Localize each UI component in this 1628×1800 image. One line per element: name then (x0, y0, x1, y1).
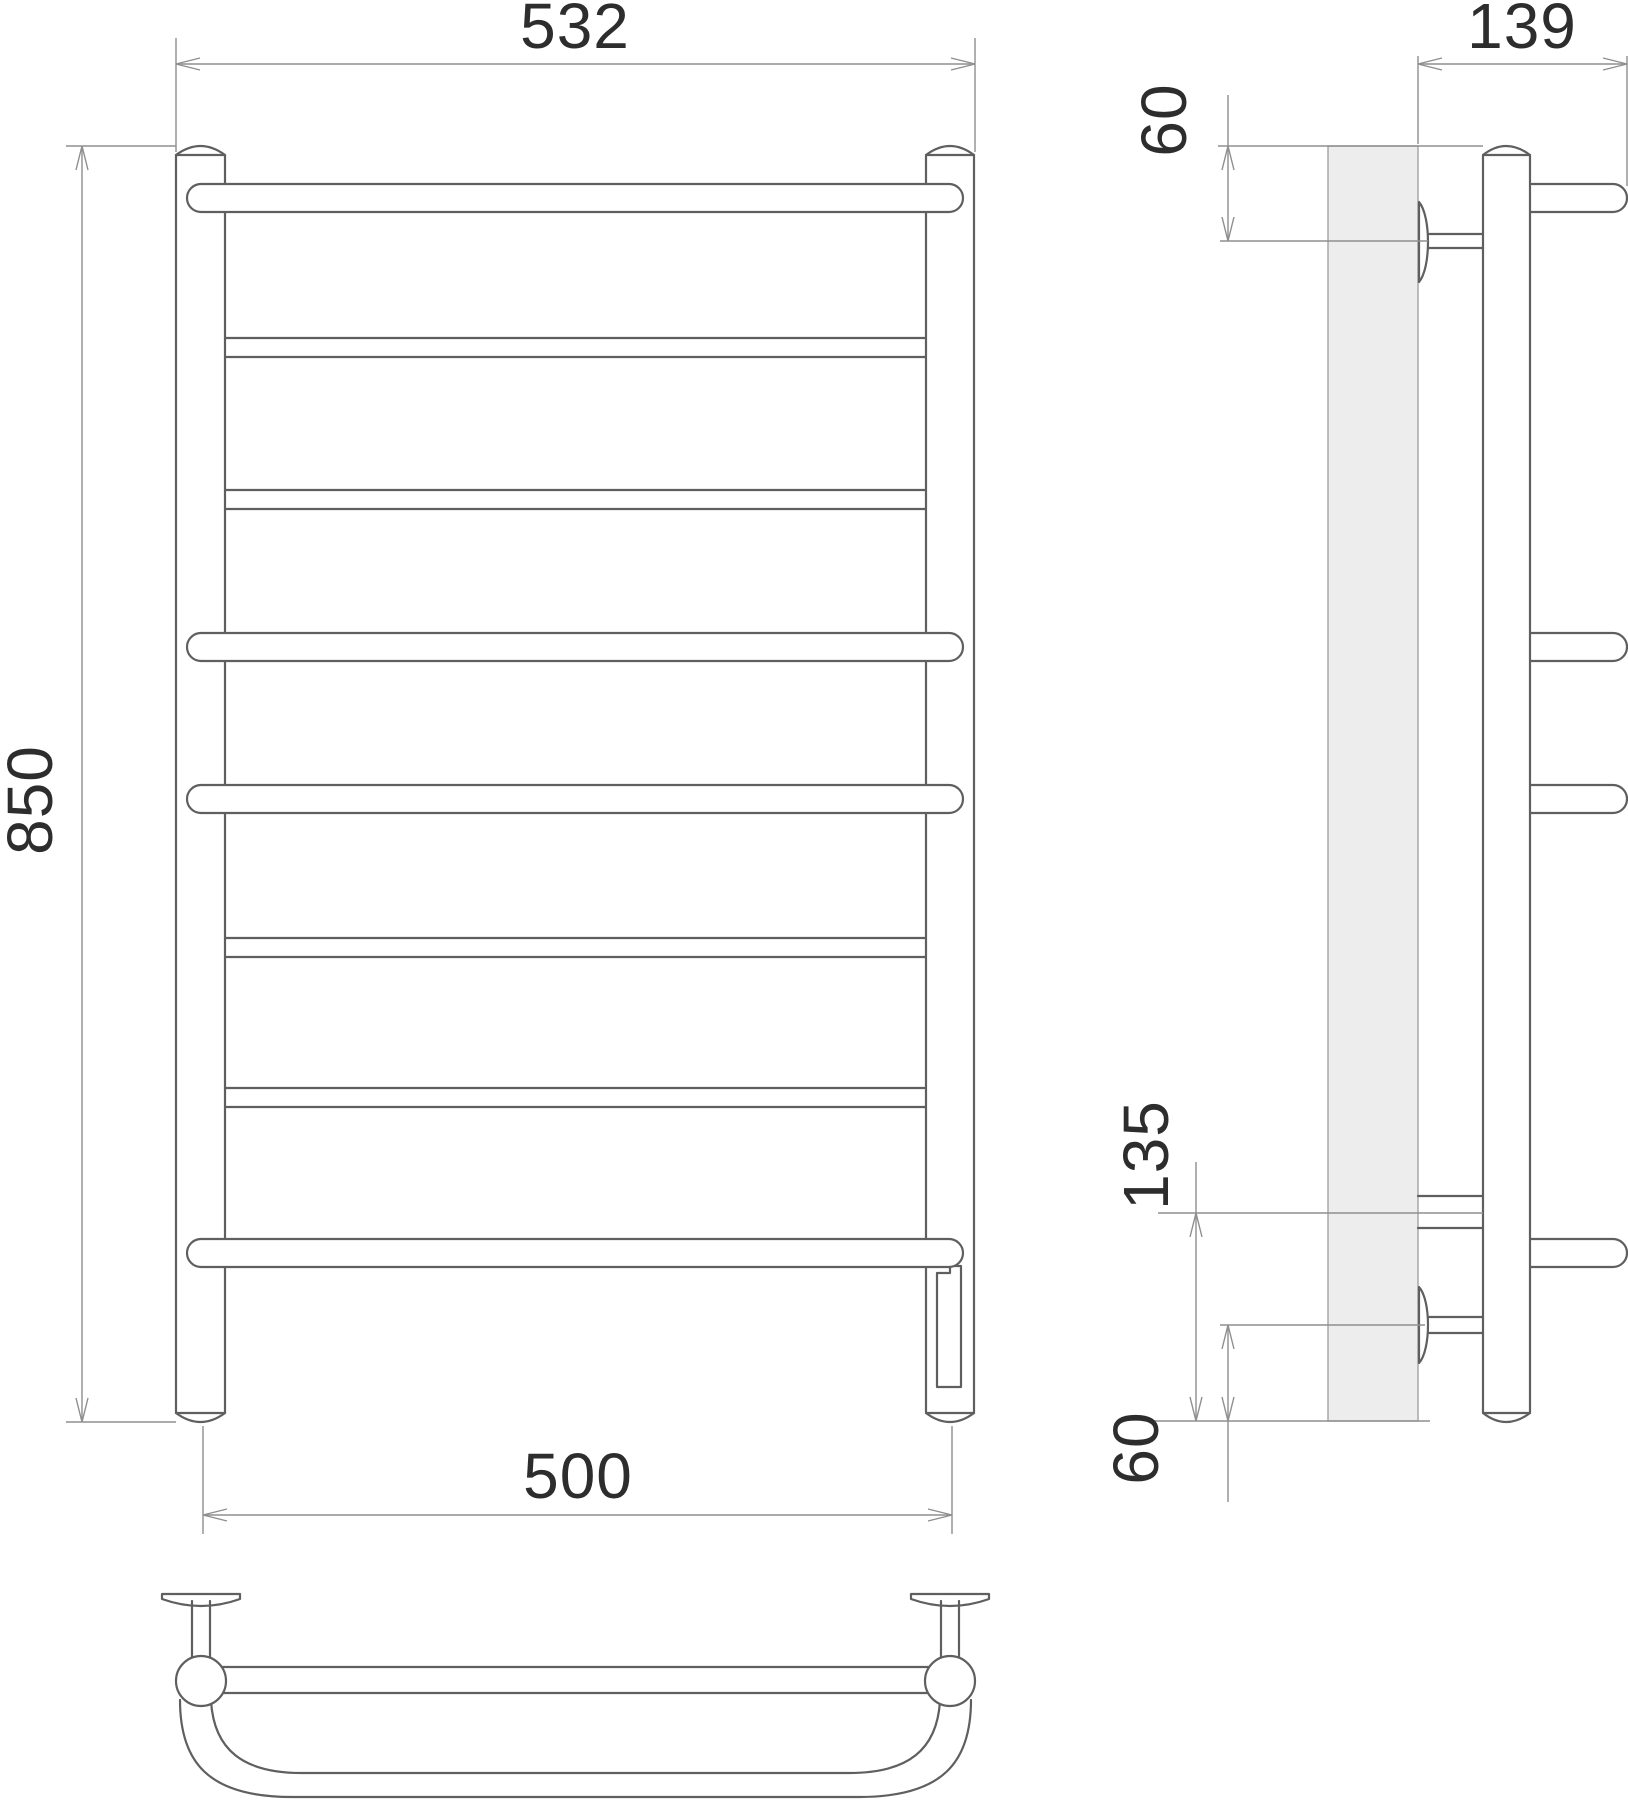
dim-60-top-label: 60 (1128, 83, 1200, 156)
wall-section (1328, 146, 1418, 1421)
dim-850-label: 850 (0, 745, 66, 855)
bottom-view-left-bracket (162, 1594, 240, 1706)
bottom-view (162, 1594, 989, 1797)
dim-532-label: 532 (520, 0, 630, 62)
dim-overall-height: 850 (0, 146, 176, 1422)
bottom-wall-bracket (1419, 1287, 1483, 1363)
side-post-tube (1483, 146, 1530, 1422)
bottom-view-curved-bar (180, 1700, 971, 1797)
dim-overall-width: 532 (176, 0, 975, 152)
water-connection-stub (1418, 1196, 1483, 1228)
dim-500-label: 500 (523, 1440, 633, 1512)
rear-rungs (225, 338, 926, 1107)
dim-135-label: 135 (1110, 1100, 1182, 1210)
dim-mount-width: 500 (203, 1426, 952, 1534)
top-wall-bracket (1419, 202, 1483, 282)
bottom-view-right-bracket (911, 1594, 989, 1706)
dim-60-bottom-label: 60 (1100, 1411, 1172, 1484)
front-rungs (187, 184, 963, 1267)
dim-139-label: 139 (1467, 0, 1577, 62)
side-view: 139 60 135 60 (1100, 0, 1627, 1502)
bottom-view-straight-bar (210, 1667, 941, 1693)
dim-connection-height: 135 (1110, 1100, 1483, 1421)
dim-top-bracket-offset: 60 (1128, 83, 1483, 241)
drawing-sheet: 532 850 500 (0, 0, 1628, 1800)
front-view: 532 850 500 (0, 0, 975, 1534)
towel-rail-drawing: 532 850 500 (0, 0, 1628, 1800)
